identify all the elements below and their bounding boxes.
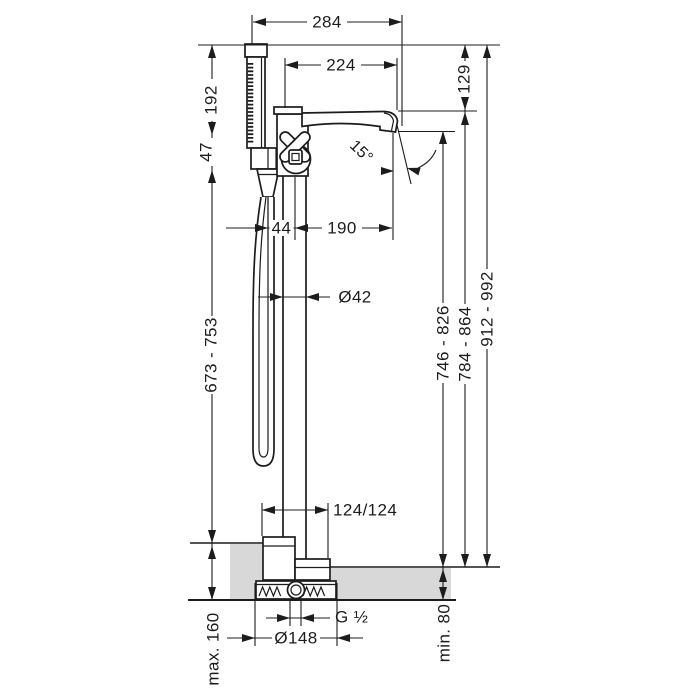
dim-thread-size: G ½: [266, 599, 368, 627]
technical-drawing-page: 284 224 192 47 673 - 753 max. 1: [0, 0, 700, 700]
dim-right-chain: 129 746 - 826 784 - 864 912 - 992 min. 8…: [434, 45, 497, 662]
dim-label-hose-offset: 44: [272, 219, 292, 238]
base-flange: [256, 581, 336, 599]
dim-label-spout-drop: 129: [455, 64, 474, 94]
spout: [302, 112, 398, 133]
dim-spray-angle: 15°: [346, 125, 436, 184]
floor-buildup: [188, 543, 500, 600]
dim-label-spout-width: 224: [326, 56, 356, 75]
dim-label-overall-height: 912 - 992: [478, 271, 497, 346]
dim-label-riser-diameter: Ø42: [338, 288, 371, 307]
hose-connector: [257, 169, 279, 197]
dim-label-thread-size: G ½: [335, 608, 368, 627]
handle-screw: [289, 150, 302, 164]
dim-label-base-offsets: 124/124: [333, 501, 397, 520]
bath-mixer-dimension-drawing: 284 224 192 47 673 - 753 max. 1: [0, 0, 700, 700]
dim-left-chain: 192 47 673 - 753 max. 160: [197, 45, 223, 686]
top-plate: [274, 107, 302, 114]
mixer-head: [274, 107, 398, 176]
dim-label-floor-min: min. 80: [435, 604, 454, 663]
handshower-cap: [245, 44, 267, 57]
floor-buildup-right: [331, 568, 451, 600]
dim-label-handshower-height: 192: [202, 85, 221, 115]
dim-label-spray-angle: 15°: [346, 137, 376, 167]
dim-label-overall-width: 284: [312, 13, 342, 32]
hand-shower: [245, 44, 267, 148]
dim-spout-width: 224: [285, 56, 397, 111]
inlet-connection: [288, 582, 305, 599]
dim-label-floor-max: max. 160: [204, 612, 223, 685]
dim-riser-diameter: Ø42: [258, 288, 372, 307]
dim-label-spout-reach: 190: [327, 219, 357, 238]
dim-label-hose-height: 673 - 753: [202, 317, 221, 392]
dim-label-outlet-height: 746 - 826: [434, 305, 453, 380]
dim-label-base-diameter: Ø148: [274, 629, 317, 648]
dim-label-holder-drop: 47: [197, 142, 216, 162]
dim-label-spout-top-height: 784 - 864: [456, 306, 475, 381]
